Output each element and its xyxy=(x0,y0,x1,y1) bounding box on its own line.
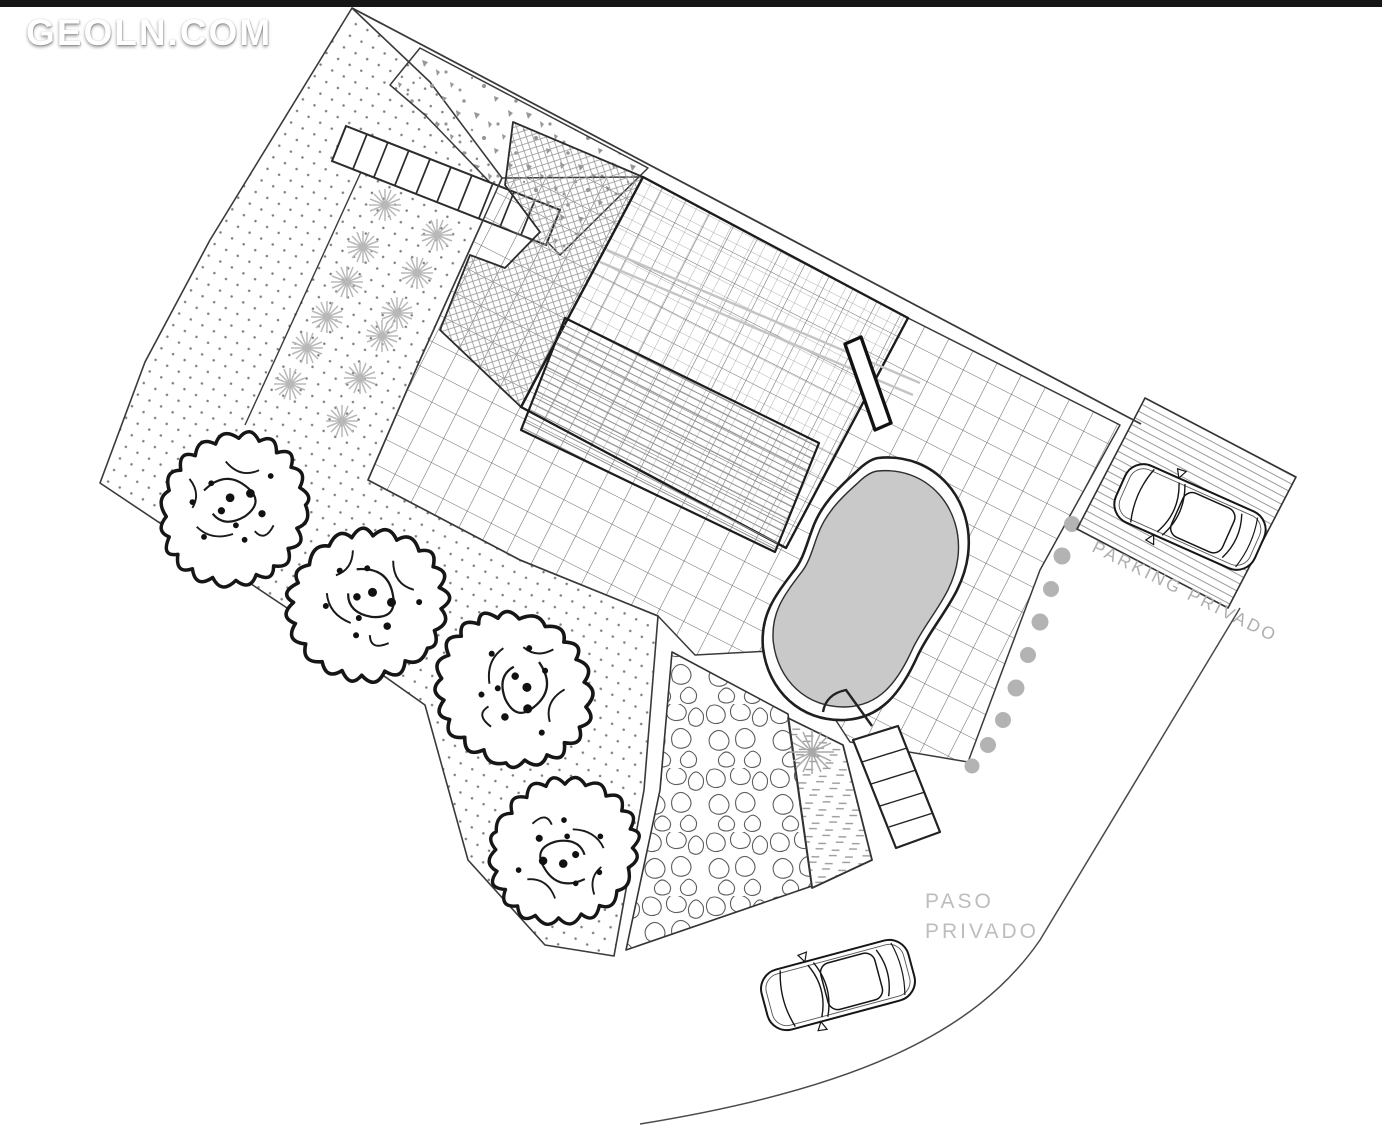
palm-plant xyxy=(790,730,834,774)
road-car xyxy=(754,927,922,1044)
site-plan-svg: PARKING PRIVADO PASO PRIVADO xyxy=(0,0,1382,1125)
hedge-shrub xyxy=(1054,548,1071,565)
hedge-shrub xyxy=(965,759,980,774)
hedge-shrub xyxy=(1032,614,1049,631)
hedge-shrub xyxy=(1020,647,1036,663)
hedge-shrub xyxy=(980,737,996,753)
large-tree xyxy=(161,432,309,587)
svg-text:PASO: PASO xyxy=(925,890,994,913)
hedge-shrub xyxy=(1008,680,1025,697)
hedge-shrub xyxy=(1043,581,1059,597)
hedge-shrub xyxy=(995,712,1011,728)
svg-text:PRIVADO: PRIVADO xyxy=(925,920,1039,943)
road-label: PASO PRIVADO xyxy=(925,890,1039,943)
site-plan-page: GEOLN.COM xyxy=(0,0,1382,1125)
